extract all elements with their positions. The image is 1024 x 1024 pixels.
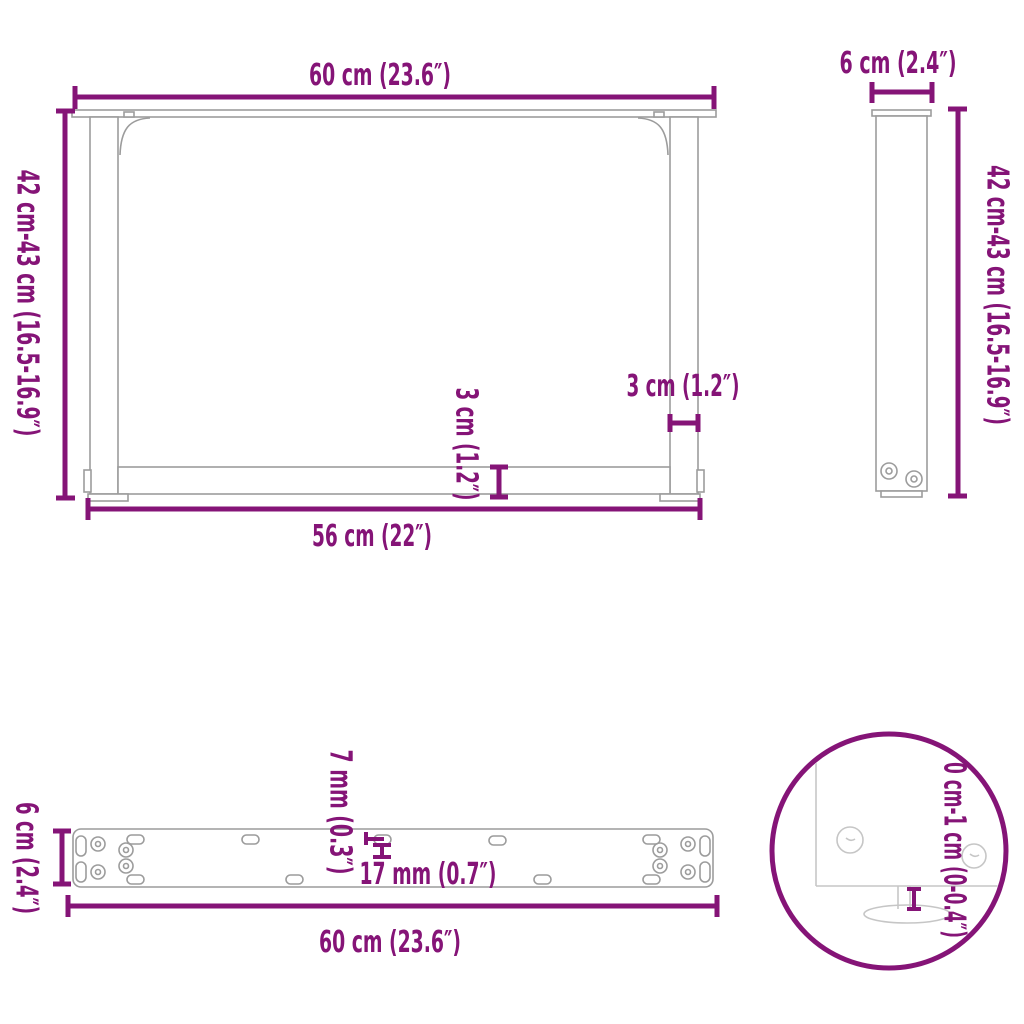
- top-hole-dimensions: 7 mm (0.3″) 17 mm (0.7″): [323, 750, 497, 893]
- front-right-leg: [670, 117, 698, 494]
- top-depth-dimension: 6 cm (2.4″): [9, 802, 72, 914]
- front-height-dimension: 42 cm-43 cm (16.5-16.9″): [10, 111, 76, 498]
- front-left-notch: [124, 112, 134, 117]
- side-leg-column: [876, 116, 927, 491]
- side-height-dimension: 42 cm-43 cm (16.5-16.9″): [948, 109, 1015, 496]
- front-crossbar: [118, 467, 670, 494]
- detail-screw-1-mark: [846, 838, 855, 840]
- top-hole-width-label: 7 mm (0.3″): [323, 750, 358, 875]
- top-length-label: 60 cm (23.6″): [319, 925, 461, 960]
- top-view: 6 cm (2.4″) 7 mm (0.3″) 17 mm (0.7″) 60 …: [9, 750, 718, 961]
- detail-adjust-range-label: 0 cm-1 cm (0-0.4″): [937, 762, 972, 938]
- side-top-plate: [872, 110, 931, 116]
- front-top-plate: [72, 110, 716, 117]
- side-view: 6 cm (2.4″) 42 cm-43 cm (16.5-16.9″): [840, 46, 1015, 497]
- front-leg-thickness-label: 3 cm (1.2″): [627, 369, 740, 404]
- front-left-gusset: [120, 118, 150, 155]
- front-left-adjuster: [84, 470, 91, 492]
- dimension-diagram: 60 cm (23.6″) 42 cm-43 cm (16.5-16.9″) 3…: [0, 0, 1024, 1024]
- top-hole-length-label: 17 mm (0.7″): [360, 857, 497, 892]
- front-left-leg: [90, 117, 118, 494]
- front-right-foot: [660, 494, 700, 501]
- front-top-width-label: 60 cm (23.6″): [309, 58, 451, 93]
- front-view-leg-frame: [72, 110, 716, 501]
- front-height-label: 42 cm-43 cm (16.5-16.9″): [10, 170, 45, 437]
- front-right-adjuster: [697, 470, 704, 492]
- front-right-gusset: [638, 118, 668, 155]
- detail-contents: [816, 735, 1006, 923]
- front-crossbar-thickness-dimension: 3 cm (1.2″): [449, 388, 509, 501]
- front-right-notch: [654, 112, 664, 117]
- front-view: 60 cm (23.6″) 42 cm-43 cm (16.5-16.9″) 3…: [10, 58, 740, 554]
- top-length-dimension: 60 cm (23.6″): [68, 895, 717, 960]
- side-width-label: 6 cm (2.4″): [840, 46, 957, 81]
- front-bottom-dimension: 56 cm (22″): [88, 498, 700, 554]
- top-depth-label: 6 cm (2.4″): [9, 802, 44, 914]
- detail-adjust-dimension: 0 cm-1 cm (0-0.4″): [907, 762, 972, 938]
- side-view-leg: [872, 110, 931, 497]
- diagram-canvas: 60 cm (23.6″) 42 cm-43 cm (16.5-16.9″) 3…: [0, 0, 1024, 1024]
- detail-view: 0 cm-1 cm (0-0.4″): [772, 734, 1006, 968]
- front-left-foot: [88, 494, 128, 501]
- side-foot: [881, 491, 922, 497]
- front-top-dimension: 60 cm (23.6″): [75, 58, 714, 109]
- front-leg-thickness-dimension: 3 cm (1.2″): [627, 369, 740, 432]
- front-bottom-width-label: 56 cm (22″): [312, 519, 432, 554]
- front-crossbar-thickness-label: 3 cm (1.2″): [449, 388, 484, 501]
- side-width-dimension: 6 cm (2.4″): [840, 46, 957, 103]
- side-height-label: 42 cm-43 cm (16.5-16.9″): [980, 165, 1015, 425]
